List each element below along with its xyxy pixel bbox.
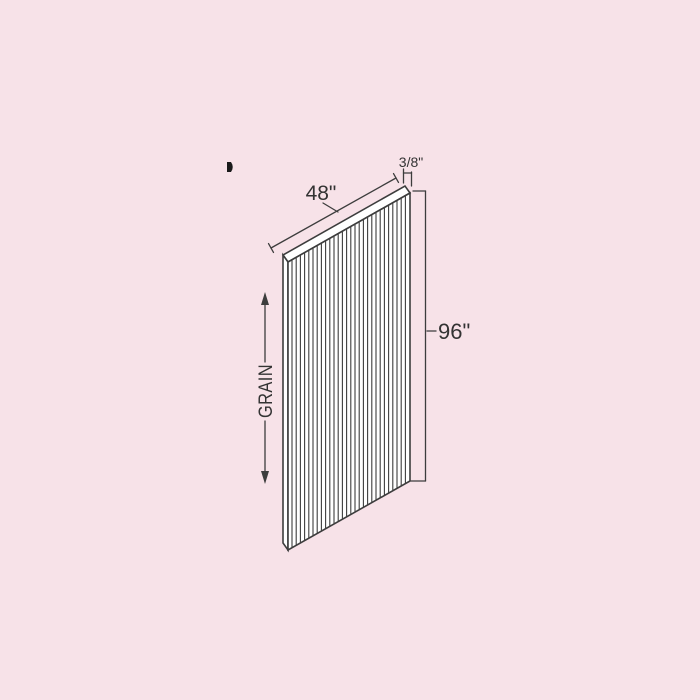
arrowhead-down-icon: [261, 471, 269, 484]
height-dimension-label: 96": [438, 319, 470, 344]
drawing-canvas: 48" 3/8" 96" GRAIN: [0, 0, 700, 700]
edge-artifact-mark: [227, 162, 233, 172]
panel-diagram: 48" 3/8" 96" GRAIN: [0, 0, 700, 700]
grain-label: GRAIN: [256, 364, 277, 418]
thickness-dimension-bracket: [404, 169, 412, 186]
arrowhead-up-icon: [261, 292, 269, 305]
thickness-dimension-label: 3/8": [399, 154, 423, 170]
height-dimension-line: [411, 191, 436, 481]
width-dimension-label: 48": [306, 182, 337, 205]
